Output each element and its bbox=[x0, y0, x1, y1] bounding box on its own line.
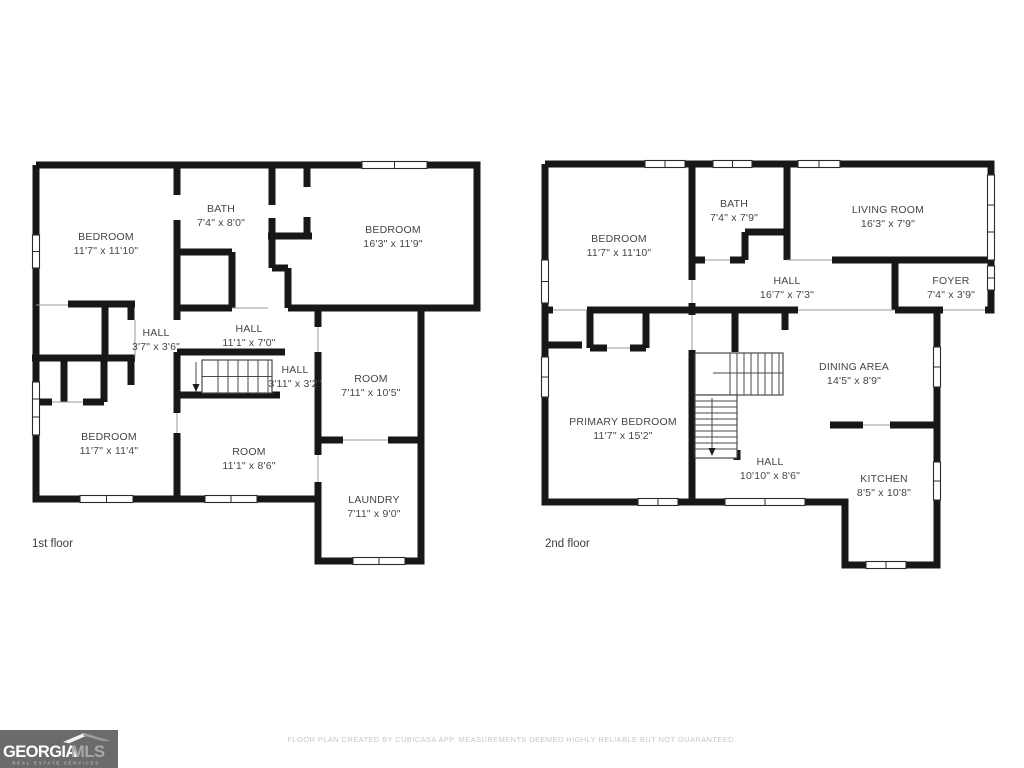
room-dims: 7'4" x 8'0" bbox=[197, 217, 245, 229]
room-dims: 11'1" x 7'0" bbox=[222, 337, 275, 349]
room-dims: 11'7" x 11'10" bbox=[587, 247, 652, 259]
second-floor-door-openings bbox=[553, 260, 985, 425]
room-dims: 7'11" x 10'5" bbox=[341, 387, 400, 399]
room-label: ROOM bbox=[232, 446, 265, 458]
first-floor-plan: BEDROOM 11'7" x 11'10" BATH 7'4" x 8'0" … bbox=[32, 162, 477, 565]
room-dims: 16'3" x 7'9" bbox=[861, 218, 915, 230]
room-label: FOYER bbox=[932, 275, 969, 287]
room-label: BATH bbox=[207, 203, 235, 215]
room-dims: 16'7" x 7'3" bbox=[760, 289, 814, 301]
room-label: PRIMARY BEDROOM bbox=[569, 416, 677, 428]
room-dims: 11'7" x 11'4" bbox=[80, 445, 139, 457]
room-label: HALL bbox=[773, 275, 800, 287]
room-label: BATH bbox=[720, 198, 748, 210]
disclaimer-text: FLOOR PLAN CREATED BY CUBICASA APP. MEAS… bbox=[0, 735, 1024, 744]
room-label: LAUNDRY bbox=[348, 494, 399, 506]
room-label: HALL bbox=[235, 323, 262, 335]
room-dims: 11'7" x 11'10" bbox=[74, 245, 139, 257]
logo-brand-secondary: MLS bbox=[71, 743, 105, 761]
room-label: BEDROOM bbox=[78, 231, 134, 243]
room-dims: 10'10" x 8'6" bbox=[740, 470, 800, 482]
second-floor-plan: BEDROOM 11'7" x 11'10" BATH 7'4" x 7'9" … bbox=[542, 161, 995, 569]
stairs-down-arrow bbox=[193, 384, 200, 392]
first-floor-name: 1st floor bbox=[32, 538, 73, 550]
room-label: HALL bbox=[756, 456, 783, 468]
room-dims: 11'1" x 8'6" bbox=[222, 460, 275, 472]
room-dims: 7'11" x 9'0" bbox=[347, 508, 400, 520]
room-label: LIVING ROOM bbox=[852, 204, 924, 216]
second-floor-stairs bbox=[695, 353, 783, 458]
first-floor-stairs bbox=[193, 360, 273, 393]
second-floor-name: 2nd floor bbox=[545, 538, 590, 550]
room-label: BEDROOM bbox=[81, 431, 137, 443]
room-dims: 7'4" x 7'9" bbox=[710, 212, 758, 224]
room-label: KITCHEN bbox=[860, 473, 908, 485]
room-dims: 16'3" x 11'9" bbox=[363, 238, 422, 250]
room-label: ROOM bbox=[354, 373, 387, 385]
room-label: HALL bbox=[281, 364, 308, 376]
room-label: DINING AREA bbox=[819, 361, 889, 373]
room-dims: 3'11" x 3'2" bbox=[268, 378, 321, 390]
room-label: BEDROOM bbox=[591, 233, 647, 245]
room-dims: 14'5" x 8'9" bbox=[827, 375, 881, 387]
room-label: BEDROOM bbox=[365, 224, 421, 236]
room-label: HALL bbox=[142, 327, 169, 339]
room-dims: 3'7" x 3'6" bbox=[132, 341, 180, 353]
room-dims: 7'4" x 3'9" bbox=[927, 289, 975, 301]
floor-plan-canvas: BEDROOM 11'7" x 11'10" BATH 7'4" x 8'0" … bbox=[0, 0, 1024, 768]
room-dims: 11'7" x 15'2" bbox=[593, 430, 652, 442]
floor-plan-page: BEDROOM 11'7" x 11'10" BATH 7'4" x 8'0" … bbox=[0, 0, 1024, 768]
logo-brand-primary: GEORGIA bbox=[3, 743, 77, 761]
logo-tagline: REAL ESTATE SERVICES bbox=[12, 761, 100, 766]
room-dims: 8'5" x 10'8" bbox=[857, 487, 911, 499]
